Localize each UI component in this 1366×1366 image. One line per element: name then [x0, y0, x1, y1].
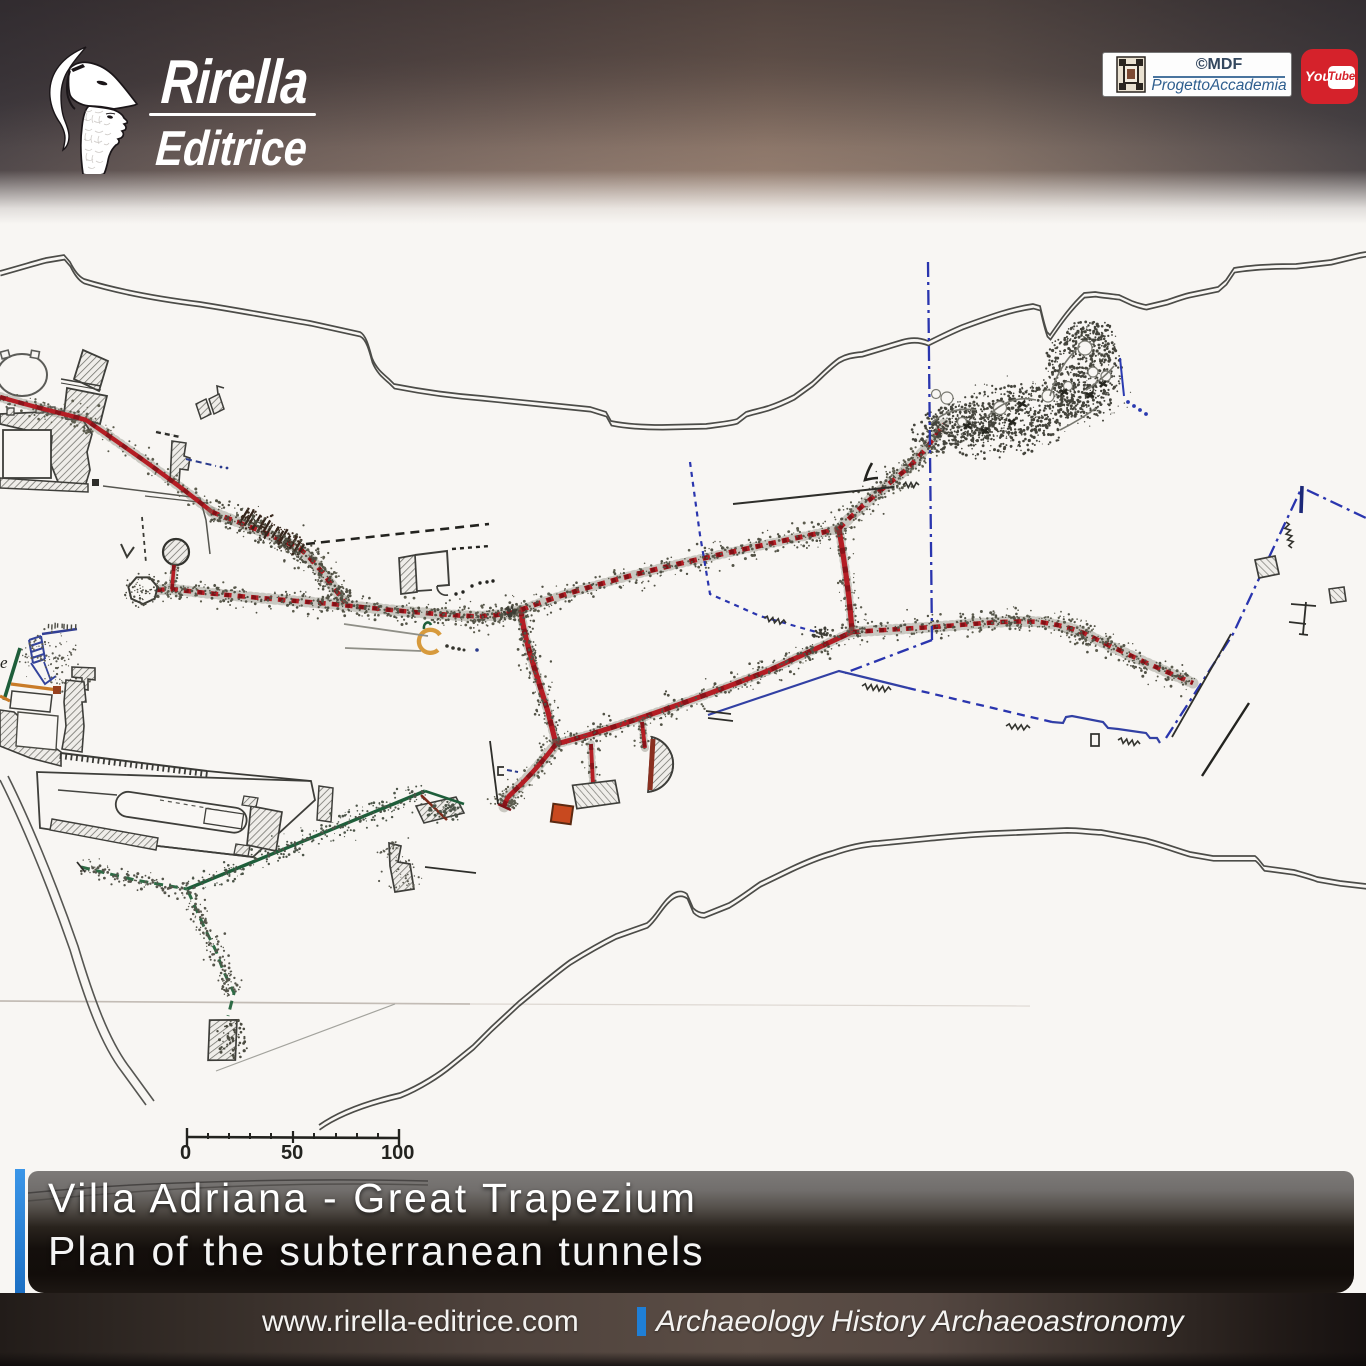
svg-text:e: e: [0, 653, 8, 672]
